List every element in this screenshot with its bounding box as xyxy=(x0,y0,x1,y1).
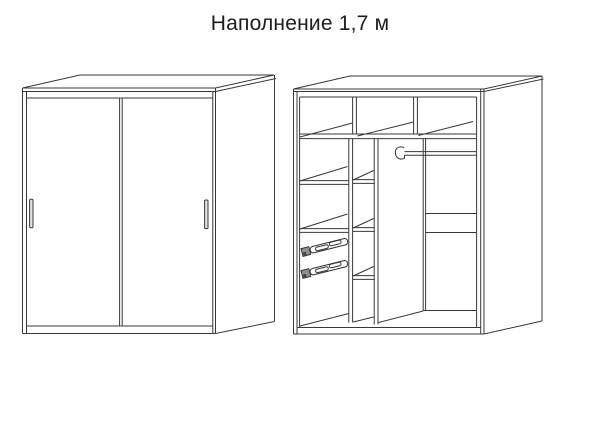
vertical-partition-left xyxy=(349,139,353,323)
top-shelf-section xyxy=(300,97,477,139)
wardrobe-front-frame xyxy=(23,88,216,334)
middle-column-shelves xyxy=(353,171,375,280)
door-handle-left-icon xyxy=(30,199,33,228)
wardrobe-diagram xyxy=(0,0,600,422)
wardrobe-side-panel xyxy=(216,75,275,334)
vertical-partition-right xyxy=(374,139,378,325)
hanging-rod xyxy=(405,152,477,156)
sliding-door-split xyxy=(120,98,123,326)
interior-floor xyxy=(300,311,477,327)
hanging-section xyxy=(395,139,476,311)
wardrobe-diagram-page: Наполнение 1,7 м xyxy=(0,0,600,422)
interior-wardrobe xyxy=(294,76,544,334)
drawer-slide-bottom-icon xyxy=(301,259,349,278)
rod-bracket-icon xyxy=(395,147,404,159)
interior-side-panel xyxy=(484,76,542,334)
drawer-slide-top-icon xyxy=(301,237,349,256)
door-handle-right-icon xyxy=(205,200,208,229)
left-column-shelves xyxy=(300,167,349,233)
wardrobe-top-panel xyxy=(23,75,277,92)
closed-wardrobe xyxy=(23,75,277,334)
